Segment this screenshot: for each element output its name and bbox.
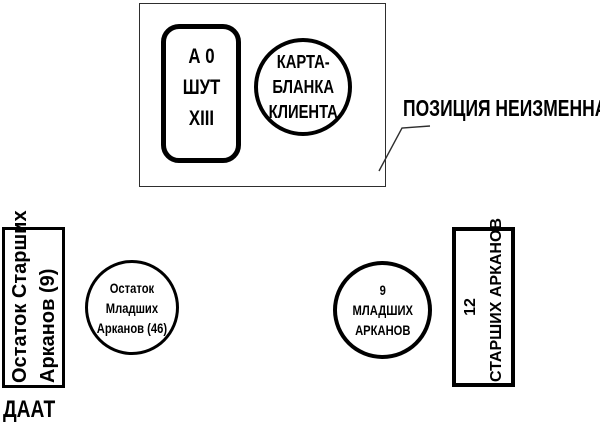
nine-minor-arcana-circle: 9 МЛАДШИХ АРКАНОВ (333, 261, 432, 359)
minor-arcana-remainder-circle: Остаток Младших Арканов (46) (85, 260, 179, 355)
nine-minor-line-1: 9 (352, 280, 412, 300)
major-remainder-rotated-text: Остаток Старших Арканов (9) (6, 233, 62, 383)
major-remainder-line-1: Остаток Старших (6, 233, 34, 383)
twelve-major-arcana-box: 12 СТАРШИХ АРКАНОВ (452, 227, 515, 387)
fool-card-line-2: ШУТ (182, 72, 220, 103)
minor-remainder-line-3: Арканов (46) (97, 318, 167, 338)
minor-remainder-text: Остаток Младших Арканов (46) (97, 278, 167, 338)
position-unchanged-label: ПОЗИЦИЯ НЕИЗМЕННА (403, 96, 600, 120)
daat-label: ДААТ (3, 397, 55, 423)
fool-card-line-1: А 0 (182, 41, 220, 72)
twelve-major-line-2: СТАРШИХ АРКАНОВ (484, 232, 510, 382)
client-circle-line-1: КАРТА- (268, 50, 337, 75)
client-blank-card-circle: КАРТА- БЛАНКА КЛИЕНТА (254, 38, 352, 136)
major-arcana-remainder-box: Остаток Старших Арканов (9) (2, 227, 65, 388)
minor-remainder-line-1: Остаток (97, 278, 167, 298)
client-circle-line-2: БЛАНКА (268, 75, 337, 100)
client-circle-line-3: КЛИЕНТА (268, 100, 337, 125)
nine-minor-line-3: АРКАНОВ (352, 320, 412, 340)
minor-remainder-line-2: Младших (97, 298, 167, 318)
nine-minor-text: 9 МЛАДШИХ АРКАНОВ (352, 280, 412, 340)
fool-card: А 0 ШУТ XIII (161, 24, 241, 163)
fool-card-line-3: XIII (182, 103, 220, 134)
twelve-major-rotated-text: 12 СТАРШИХ АРКАНОВ (458, 232, 510, 382)
fixed-position-panel: А 0 ШУТ XIII КАРТА- БЛАНКА КЛИЕНТА (139, 3, 386, 187)
fool-card-text: А 0 ШУТ XIII (182, 41, 220, 134)
tarot-layout-diagram: А 0 ШУТ XIII КАРТА- БЛАНКА КЛИЕНТА ПОЗИЦ… (0, 0, 600, 425)
nine-minor-line-2: МЛАДШИХ (352, 300, 412, 320)
major-remainder-line-2: Арканов (9) (34, 233, 62, 383)
twelve-major-line-1: 12 (458, 232, 484, 382)
client-circle-text: КАРТА- БЛАНКА КЛИЕНТА (268, 50, 337, 125)
